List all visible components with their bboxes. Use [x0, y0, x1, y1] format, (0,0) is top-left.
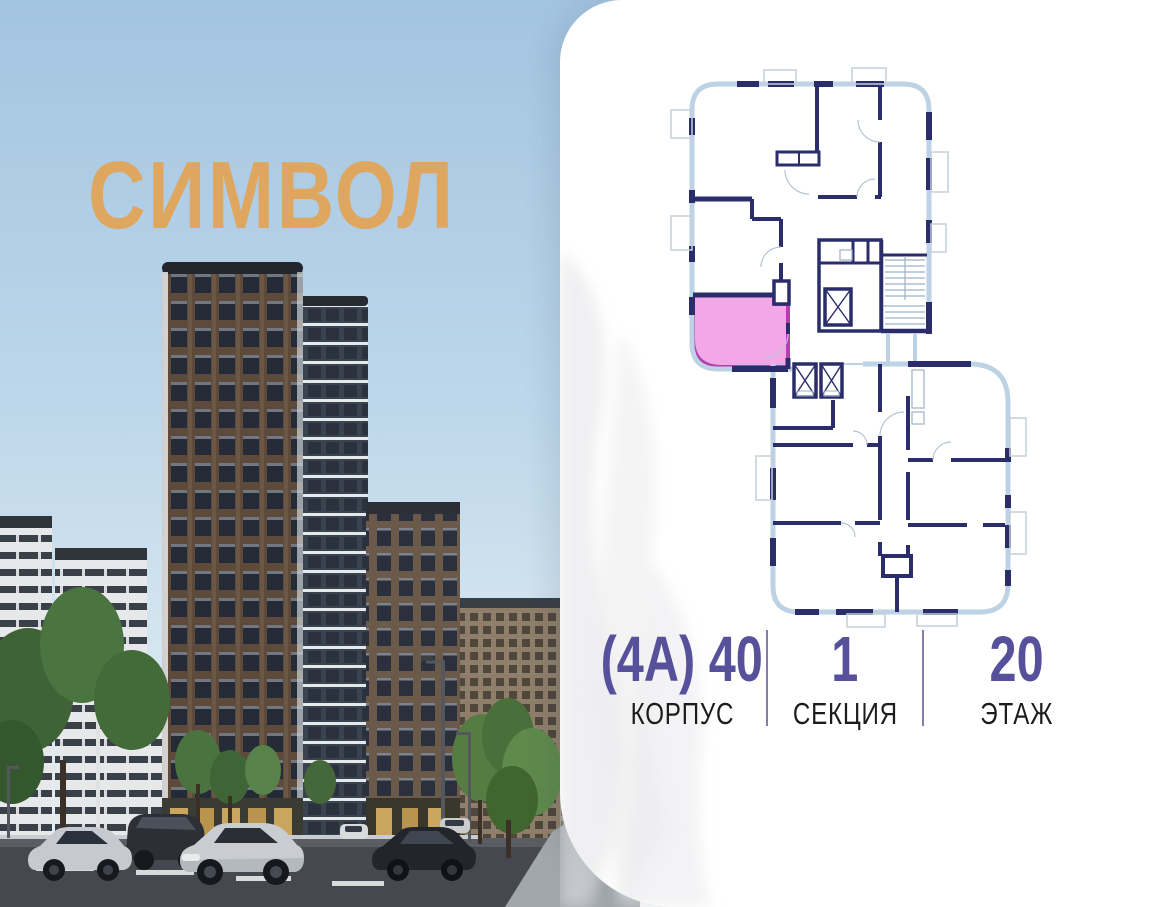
unit-info: (4А) 40 КОРПУС 1 СЕКЦИЯ 20 ЭТАЖ [598, 630, 1114, 729]
sektsiya-label: СЕКЦИЯ [792, 698, 897, 729]
info-panel: (4А) 40 КОРПУС 1 СЕКЦИЯ 20 ЭТАЖ [560, 0, 1152, 907]
info-etazh: 20 ЭТАЖ [924, 630, 1110, 729]
sektsiya-value: 1 [831, 630, 858, 689]
etazh-label: ЭТАЖ [981, 698, 1054, 729]
shaft-box [774, 281, 789, 304]
info-sektsiya: 1 СЕКЦИЯ [768, 630, 922, 729]
etazh-value: 20 [990, 630, 1044, 689]
logo-simvol: СИМВОЛ [88, 148, 420, 244]
korpus-label: КОРПУС [630, 698, 734, 729]
photo-graphic [0, 0, 640, 907]
building-photo: СИМВОЛ [0, 0, 640, 907]
right-brick-tower [366, 502, 460, 850]
korpus-value: (4А) 40 [601, 630, 763, 689]
floor-plan [665, 55, 1045, 655]
page: СИМВОЛ [0, 0, 1152, 907]
car-small-1 [340, 824, 368, 839]
info-korpus: (4А) 40 КОРПУС [598, 630, 766, 729]
